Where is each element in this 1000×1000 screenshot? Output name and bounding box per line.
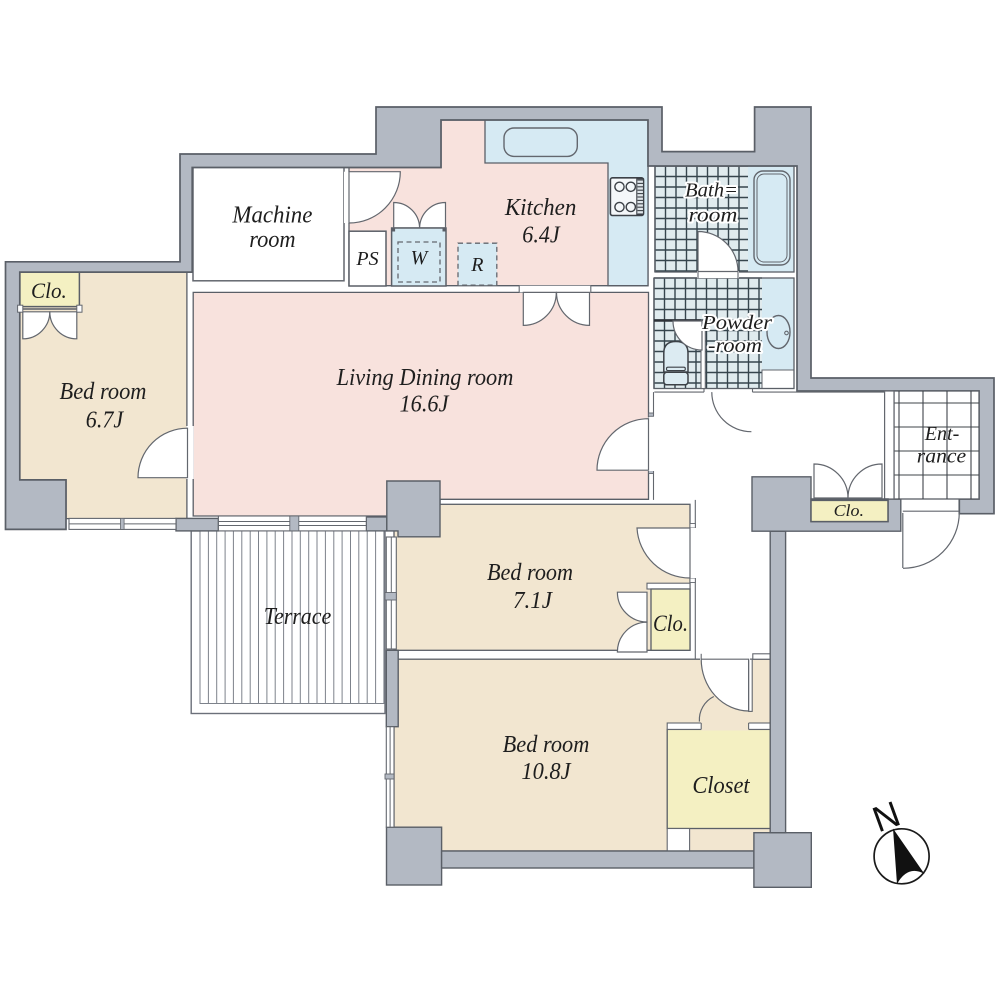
svg-text:room: room xyxy=(249,227,295,253)
svg-text:16.6J: 16.6J xyxy=(400,391,450,417)
svg-text:Machine: Machine xyxy=(231,202,312,228)
svg-text:R: R xyxy=(470,254,483,276)
svg-text:room: room xyxy=(689,205,738,227)
svg-text:Ent-: Ent- xyxy=(924,423,960,445)
svg-text:10.8J: 10.8J xyxy=(521,759,572,785)
svg-text:Living Dining room: Living Dining room xyxy=(336,365,514,391)
svg-text:Clo.: Clo. xyxy=(834,501,864,520)
svg-text:-room: -room xyxy=(708,335,762,357)
svg-text:W: W xyxy=(411,247,430,269)
svg-text:7.1J: 7.1J xyxy=(513,588,553,614)
svg-text:Powder: Powder xyxy=(701,312,773,334)
svg-text:6.7J: 6.7J xyxy=(86,408,125,434)
svg-text:6.4J: 6.4J xyxy=(522,223,561,249)
svg-text:rance: rance xyxy=(917,446,966,468)
svg-text:Bed room: Bed room xyxy=(503,732,590,758)
svg-text:Clo.: Clo. xyxy=(653,611,688,636)
svg-text:Terrace: Terrace xyxy=(264,604,332,630)
svg-text:Clo.: Clo. xyxy=(31,278,67,303)
svg-text:PS: PS xyxy=(355,248,378,270)
svg-text:Bed room: Bed room xyxy=(60,379,147,405)
svg-text:Bath=: Bath= xyxy=(685,180,738,202)
svg-text:Closet: Closet xyxy=(692,773,751,799)
svg-text:Bed room: Bed room xyxy=(487,560,573,586)
svg-text:Kitchen: Kitchen xyxy=(504,195,576,221)
